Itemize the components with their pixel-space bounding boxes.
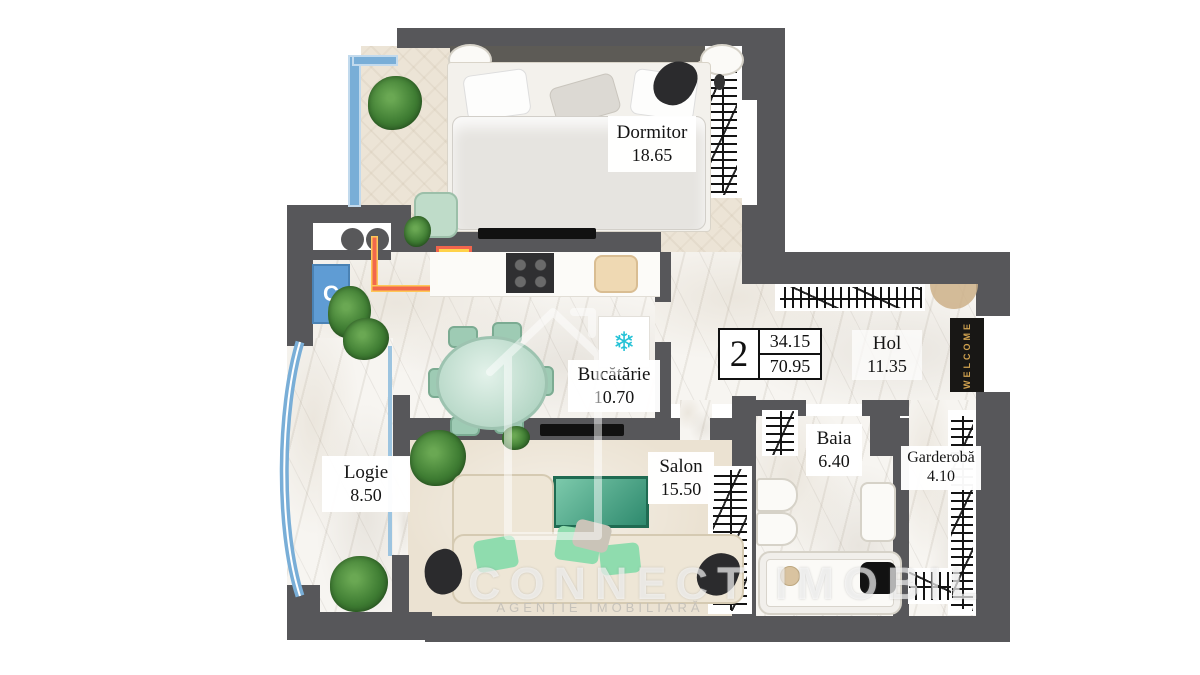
gas-pipe xyxy=(371,236,378,292)
room-name: Baia xyxy=(806,428,862,450)
cooktop xyxy=(506,253,554,293)
wall xyxy=(393,395,410,457)
bidet xyxy=(756,512,798,546)
logie-glass-partition xyxy=(388,346,392,556)
room-name: Logie xyxy=(322,462,410,484)
room-area: 11.35 xyxy=(852,356,922,377)
watermark-subtitle: AGENȚIE IMOBILIARĂ xyxy=(452,600,748,615)
room-label-dormitor: Dormitor 18.65 xyxy=(608,116,696,172)
toilet xyxy=(756,478,798,512)
room-area: 8.50 xyxy=(322,485,410,506)
agency-house-logo-icon xyxy=(478,298,628,548)
room-label-logie: Logie 8.50 xyxy=(322,456,410,512)
pillow xyxy=(462,68,532,122)
room-name: Garderobă xyxy=(901,449,981,468)
wall xyxy=(976,252,1010,316)
room-label-hol: Hol 11.35 xyxy=(852,330,922,380)
wall xyxy=(287,205,313,346)
welcome-mat-text: WELCOME xyxy=(962,321,972,389)
hall-to-salon-opening-floor xyxy=(680,400,712,442)
welcome-mat: WELCOME xyxy=(950,318,984,392)
towel-radiator-hatch xyxy=(762,410,798,456)
room-name: Salon xyxy=(648,456,714,478)
floor-plan: C ❄ WELCOME 2 34.15 70.95 Dor xyxy=(0,0,1200,675)
wall xyxy=(742,252,1010,284)
room-area: 18.65 xyxy=(608,145,696,166)
wall xyxy=(300,612,432,640)
gas-meter-dial xyxy=(341,228,364,251)
room-name: Dormitor xyxy=(608,122,696,144)
room-area: 15.50 xyxy=(648,479,714,500)
area-table: 2 34.15 70.95 xyxy=(718,328,822,380)
wall xyxy=(742,205,785,255)
room-name: Hol xyxy=(852,333,922,355)
wall xyxy=(742,28,785,100)
kitchen-sink xyxy=(594,255,638,293)
logie-curved-window xyxy=(266,338,312,600)
wall xyxy=(757,95,785,210)
wall xyxy=(392,555,409,618)
living-area-value: 34.15 xyxy=(760,330,820,355)
room-label-baia: Baia 6.40 xyxy=(806,424,862,476)
bedroom-window xyxy=(348,55,361,207)
room-label-salon: Salon 15.50 xyxy=(648,452,714,504)
total-area-value: 70.95 xyxy=(760,355,820,378)
room-area: 4.10 xyxy=(901,468,981,487)
bedroom-tv xyxy=(478,228,596,239)
bedroom-window-top xyxy=(352,55,398,66)
apartment-number: 2 xyxy=(720,330,760,378)
hall-wardrobe-hatch xyxy=(775,284,925,311)
lamp-stem xyxy=(714,74,725,90)
room-label-garderoba: Garderobă 4.10 xyxy=(901,446,981,490)
room-area: 6.40 xyxy=(806,451,862,472)
washbasin xyxy=(860,482,896,542)
wall xyxy=(425,616,1010,642)
